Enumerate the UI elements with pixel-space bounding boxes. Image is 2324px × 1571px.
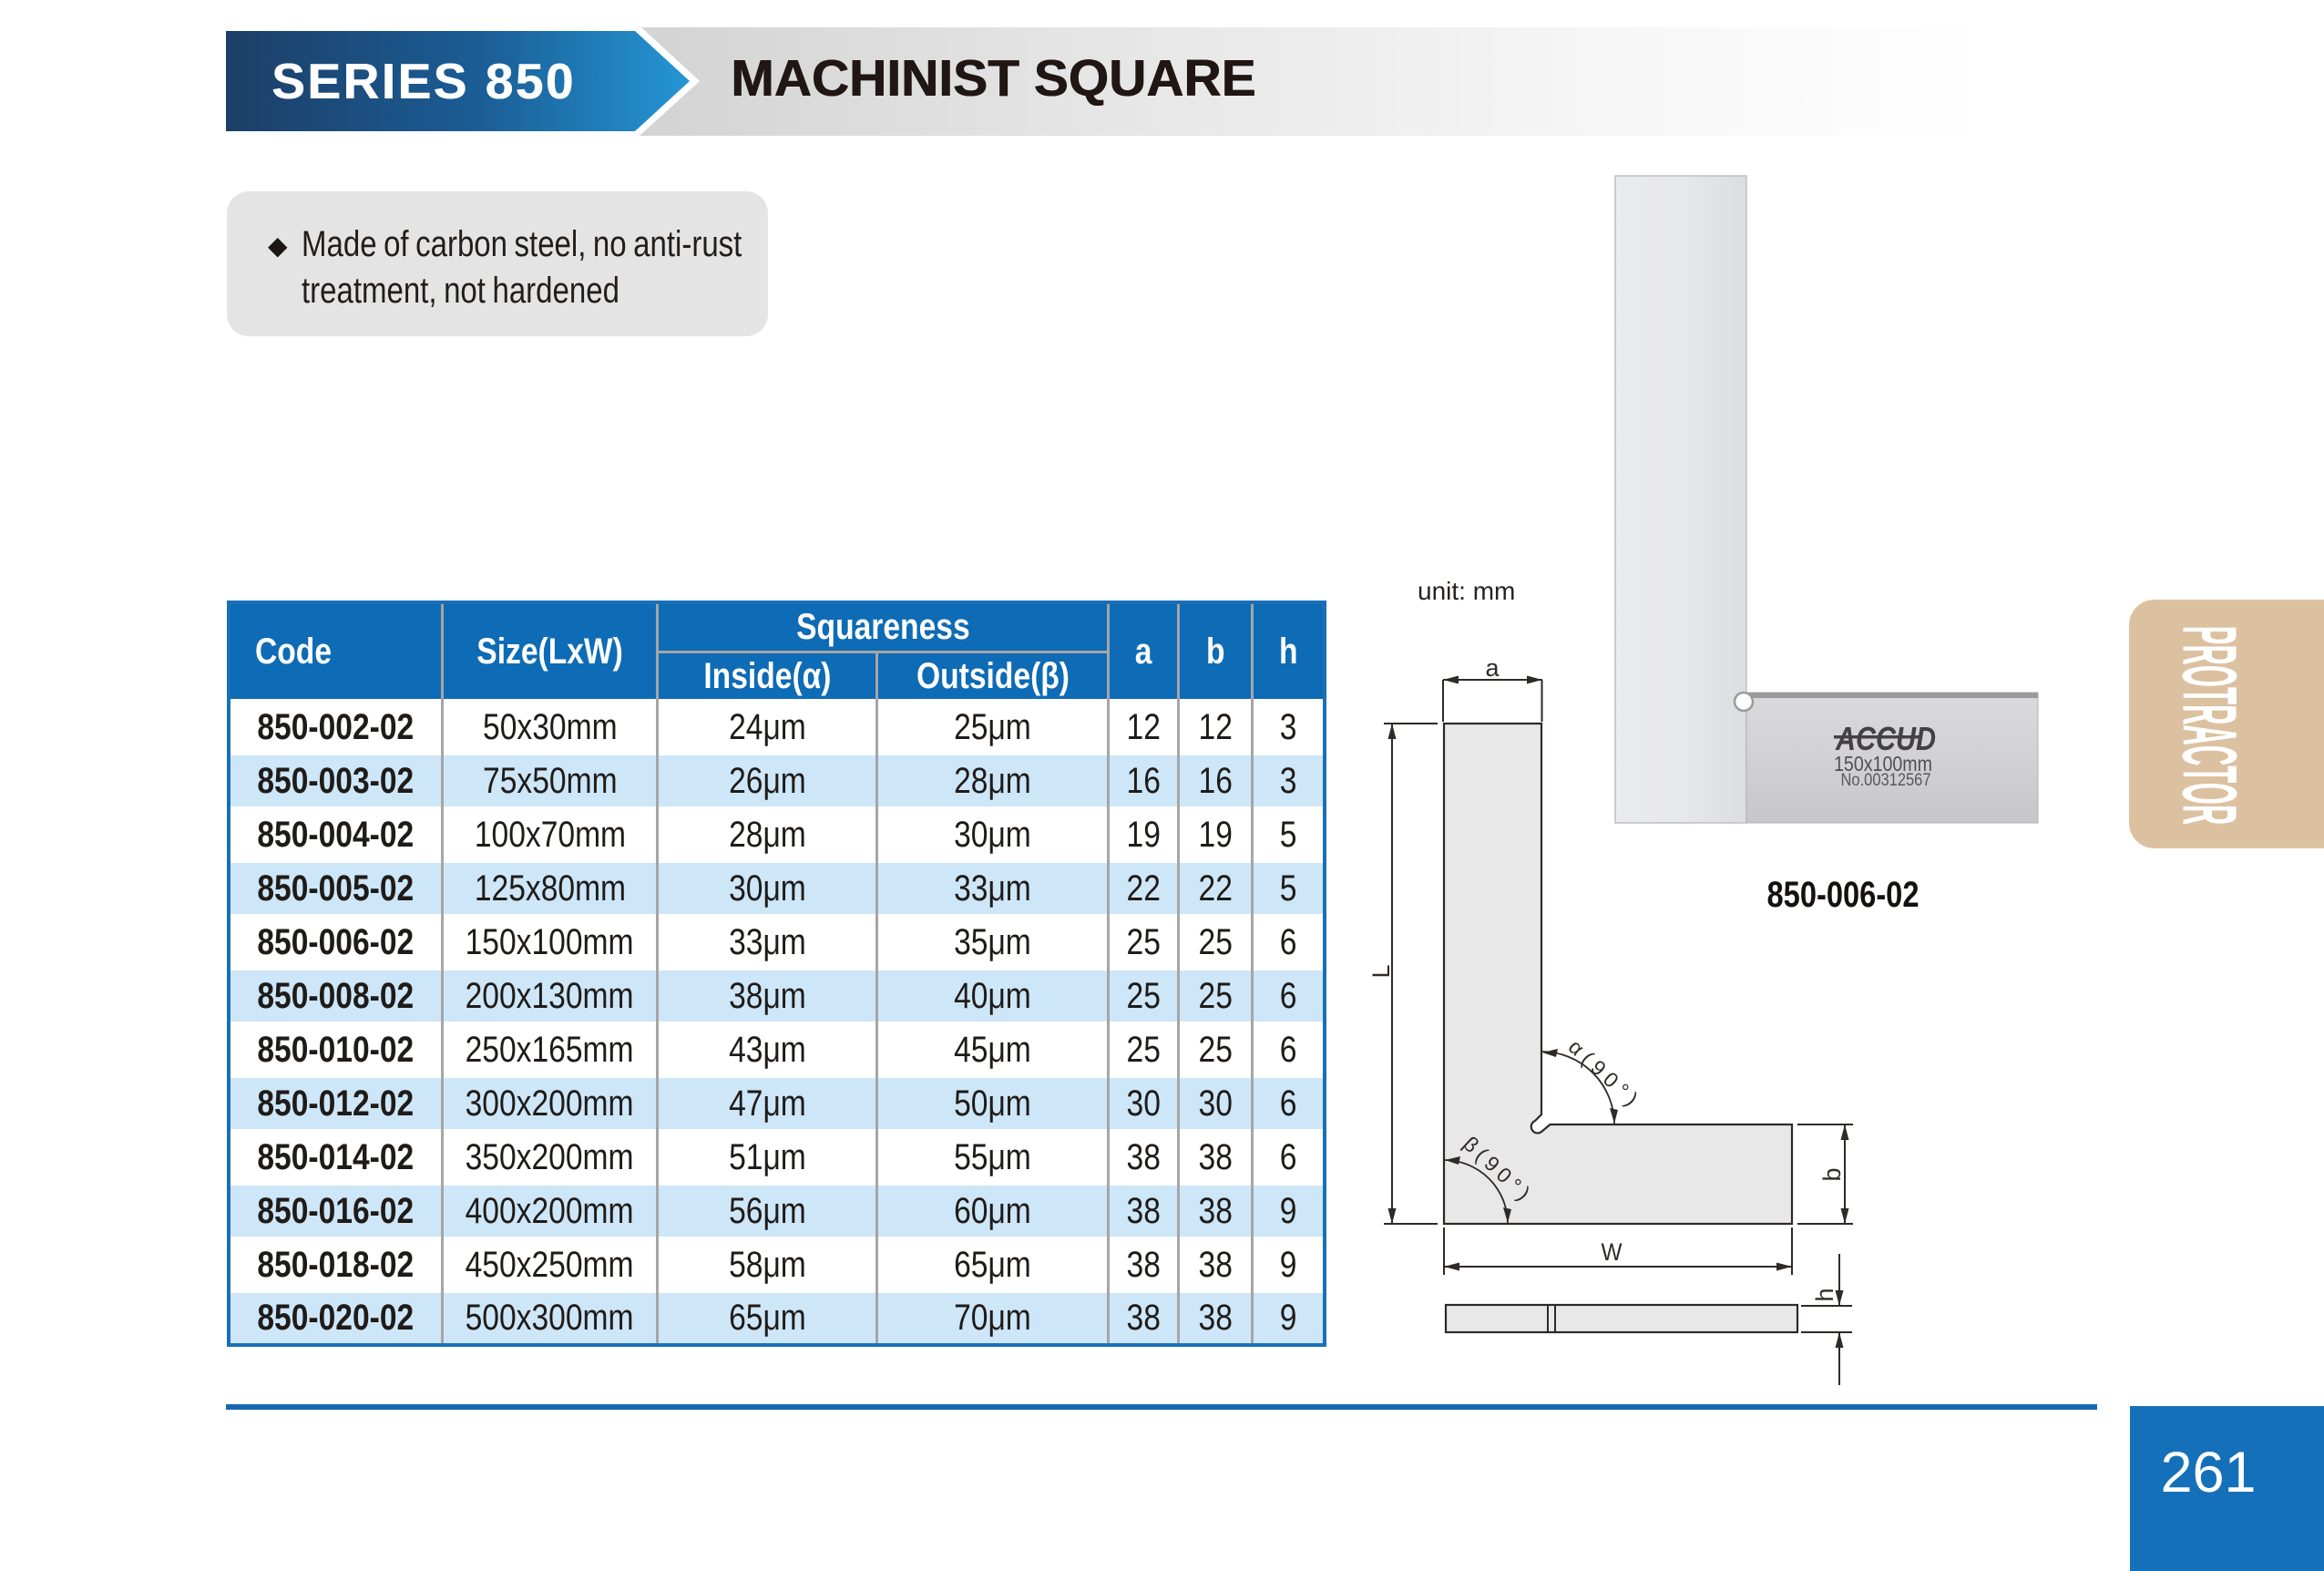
svg-text:W: W bbox=[1602, 1238, 1623, 1266]
svg-text:unit: mm: unit: mm bbox=[1418, 577, 1515, 605]
svg-text:a: a bbox=[1485, 654, 1500, 682]
svg-text:b: b bbox=[1818, 1167, 1846, 1181]
svg-text:h: h bbox=[1811, 1288, 1838, 1301]
svg-text:α(90°): α(90°) bbox=[1564, 1034, 1643, 1110]
svg-text:No.00312567: No.00312567 bbox=[1841, 771, 1931, 790]
svg-text:850-006-02: 850-006-02 bbox=[1767, 875, 1920, 915]
svg-text:L: L bbox=[1367, 964, 1395, 978]
